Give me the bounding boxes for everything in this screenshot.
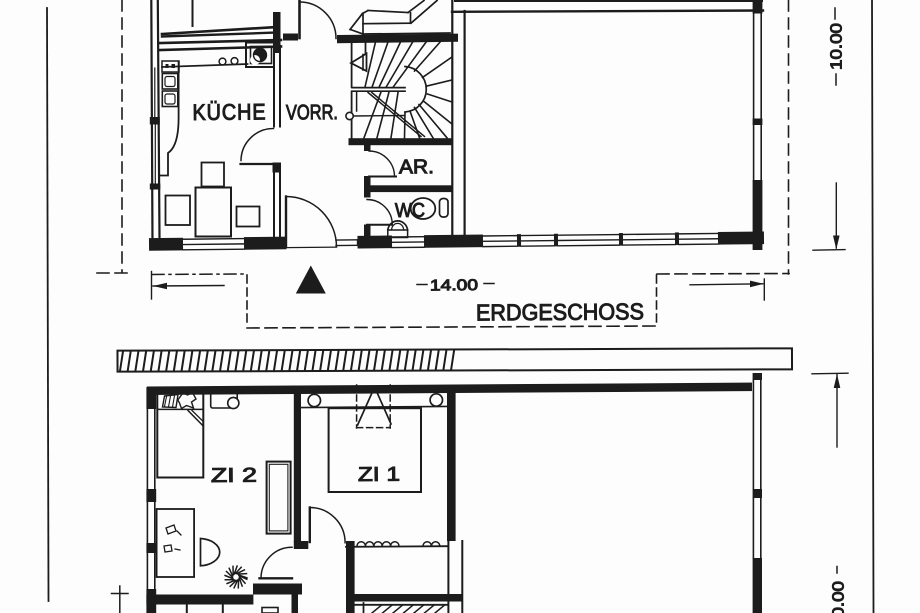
svg-text:KÜCHE: KÜCHE (192, 99, 266, 125)
svg-text:VORR.: VORR. (286, 101, 338, 124)
svg-text:ERDGESCHOSS: ERDGESCHOSS (476, 298, 644, 325)
svg-text:10.00: 10.00 (831, 581, 848, 613)
svg-text:14.00: 14.00 (430, 277, 479, 295)
svg-text:WC: WC (395, 200, 425, 222)
svg-text:ZI 1: ZI 1 (358, 464, 400, 486)
svg-text:ZI 2: ZI 2 (211, 465, 257, 487)
svg-text:AR.: AR. (399, 156, 434, 178)
svg-text:10.00: 10.00 (829, 23, 846, 70)
